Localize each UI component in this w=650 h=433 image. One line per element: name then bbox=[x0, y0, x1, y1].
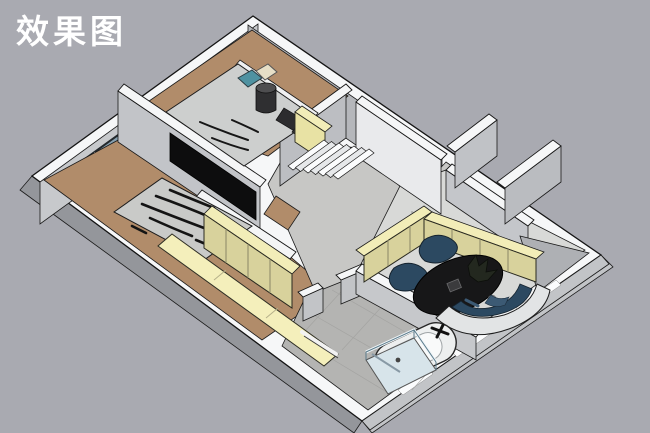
page-title: 效果图 bbox=[16, 12, 127, 52]
laundry-basket-top bbox=[256, 83, 276, 93]
rendering-canvas: 效果图 bbox=[0, 0, 650, 433]
floorplan-3d-render bbox=[0, 0, 650, 433]
shower-drain bbox=[396, 358, 401, 363]
